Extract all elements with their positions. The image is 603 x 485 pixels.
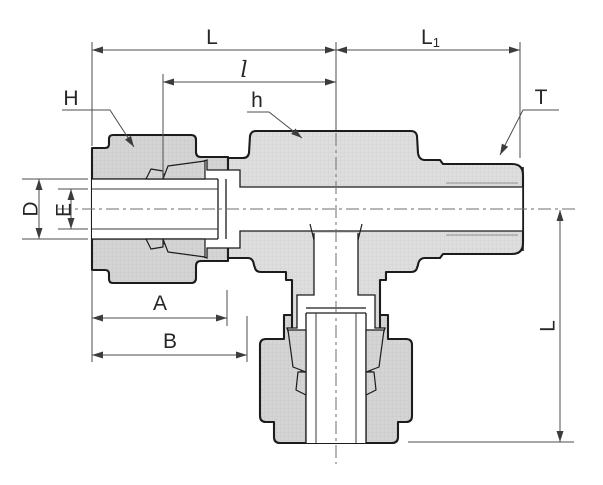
dim-label-E: E — [53, 203, 76, 217]
dim-label-h: h — [251, 89, 263, 112]
dim-label-L1-main: L — [421, 26, 433, 49]
dim-label-l: l — [240, 58, 247, 83]
dim-label-H: H — [63, 87, 78, 110]
dim-label-L-top: L — [206, 26, 218, 49]
drawing-canvas: L L1 l H h T A B D E L — [0, 0, 603, 485]
dim-label-D: D — [20, 201, 43, 216]
dim-label-L-vertical: L — [537, 320, 560, 332]
dim-label-L1-subscript: 1 — [433, 35, 440, 50]
dim-label-B: B — [163, 330, 177, 353]
dim-label-A: A — [153, 292, 167, 315]
dim-label-T: T — [535, 86, 548, 109]
fitting-technical-drawing: L L1 l H h T A B D E L — [0, 0, 603, 485]
